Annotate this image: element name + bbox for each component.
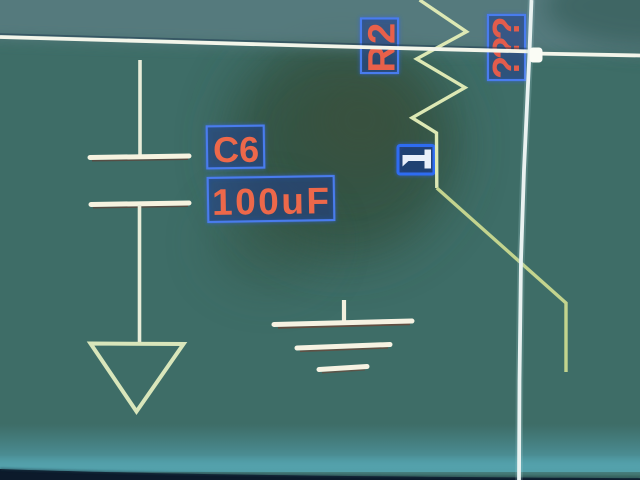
svg-text:C6: C6 [213,129,260,171]
svg-text:100uF: 100uF [212,180,332,223]
